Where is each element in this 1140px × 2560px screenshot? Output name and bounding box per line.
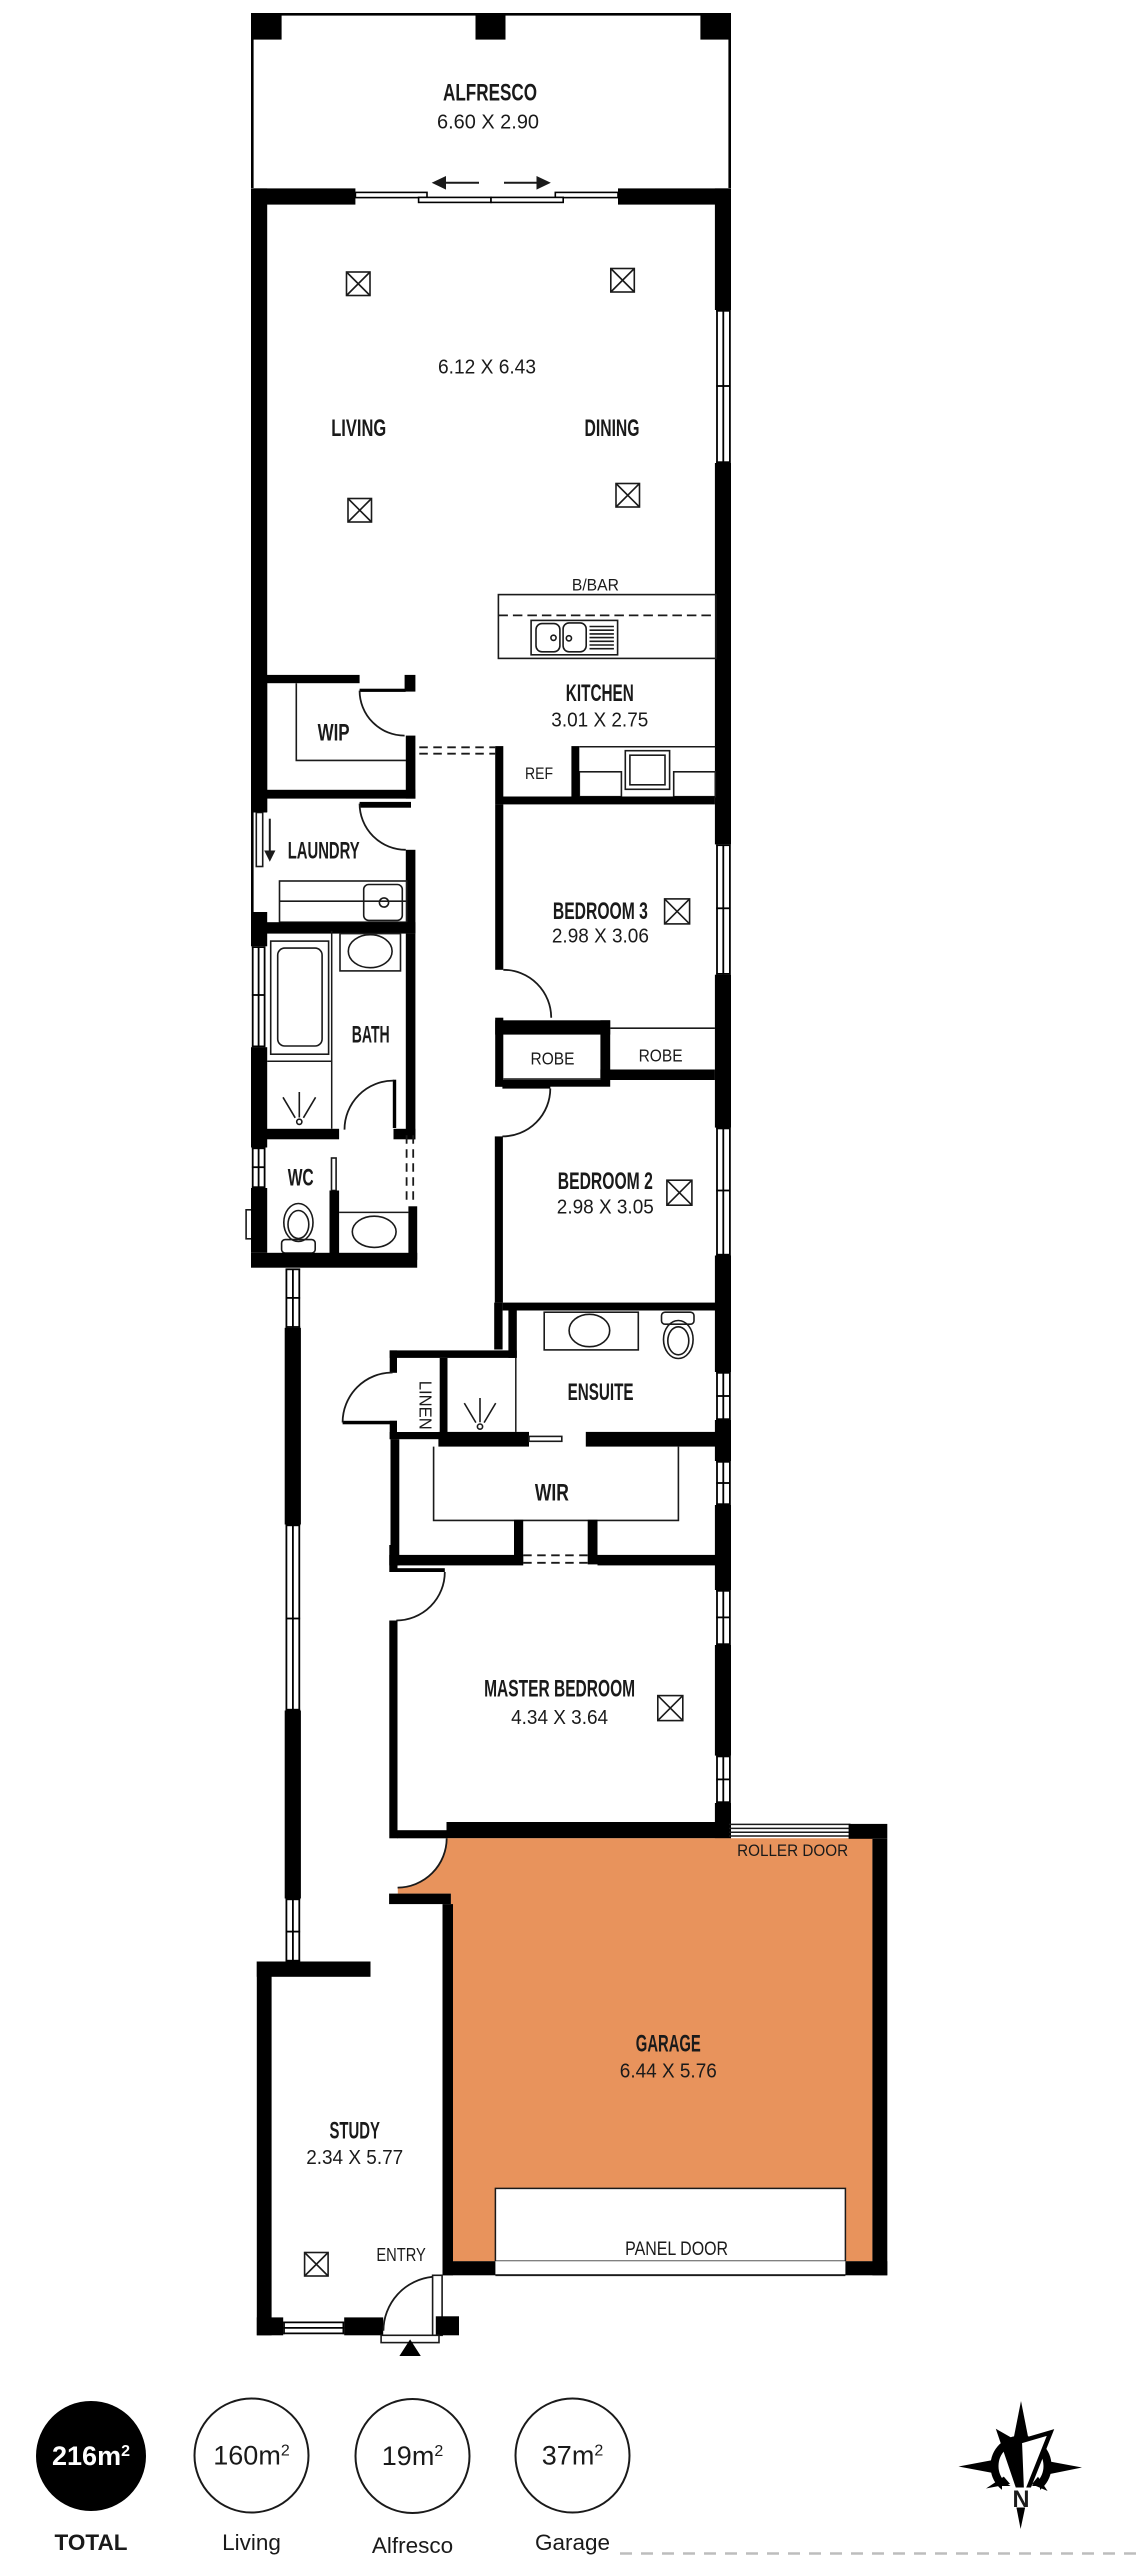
svg-text:6.12 X 6.43: 6.12 X 6.43 [438,357,536,379]
svg-text:ROBE: ROBE [531,1049,575,1069]
svg-text:BEDROOM 2: BEDROOM 2 [558,1169,653,1195]
svg-text:LAUNDRY: LAUNDRY [288,839,360,865]
svg-text:ALFRESCO: ALFRESCO [443,81,537,107]
svg-text:160m2: 160m2 [213,2441,290,2471]
svg-text:REF: REF [525,764,553,783]
svg-text:PANEL DOOR: PANEL DOOR [625,2238,728,2260]
svg-text:WIR: WIR [535,1481,569,1507]
svg-text:LINEN: LINEN [415,1381,435,1430]
svg-text:3.01 X 2.75: 3.01 X 2.75 [551,710,648,732]
svg-text:MASTER BEDROOM: MASTER BEDROOM [484,1677,635,1703]
svg-text:STUDY: STUDY [329,2119,380,2145]
svg-text:DINING: DINING [585,416,640,442]
svg-text:19m2: 19m2 [382,2441,444,2471]
svg-text:N: N [1013,2486,1030,2513]
svg-text:Garage: Garage [535,2530,610,2555]
svg-text:ENTRY: ENTRY [376,2244,426,2265]
svg-text:6.44 X 5.76: 6.44 X 5.76 [620,2061,717,2083]
svg-text:ENSUITE: ENSUITE [568,1380,634,1406]
svg-text:LIVING: LIVING [331,416,386,442]
svg-text:BATH: BATH [352,1023,390,1049]
svg-text:TOTAL: TOTAL [55,2530,128,2555]
svg-text:2.98 X 3.05: 2.98 X 3.05 [557,1197,654,1219]
svg-text:216m2: 216m2 [52,2441,130,2471]
svg-text:2.98 X 3.06: 2.98 X 3.06 [552,926,649,948]
svg-text:BEDROOM 3: BEDROOM 3 [553,899,648,925]
svg-text:ROBE: ROBE [639,1046,683,1066]
svg-text:4.34 X 3.64: 4.34 X 3.64 [511,1707,608,1729]
svg-text:Living: Living [222,2530,281,2555]
svg-text:2.34 X 5.77: 2.34 X 5.77 [306,2147,403,2169]
svg-text:6.60 X 2.90: 6.60 X 2.90 [437,112,539,134]
svg-text:WIP: WIP [318,721,350,747]
svg-text:WC: WC [288,1166,314,1192]
svg-text:KITCHEN: KITCHEN [566,681,634,707]
svg-text:GARAGE: GARAGE [636,2032,701,2058]
svg-text:Alfresco: Alfresco [372,2533,453,2558]
svg-text:ROLLER DOOR: ROLLER DOOR [737,1841,848,1860]
svg-text:37m2: 37m2 [542,2441,604,2471]
svg-text:B/BAR: B/BAR [572,577,619,595]
